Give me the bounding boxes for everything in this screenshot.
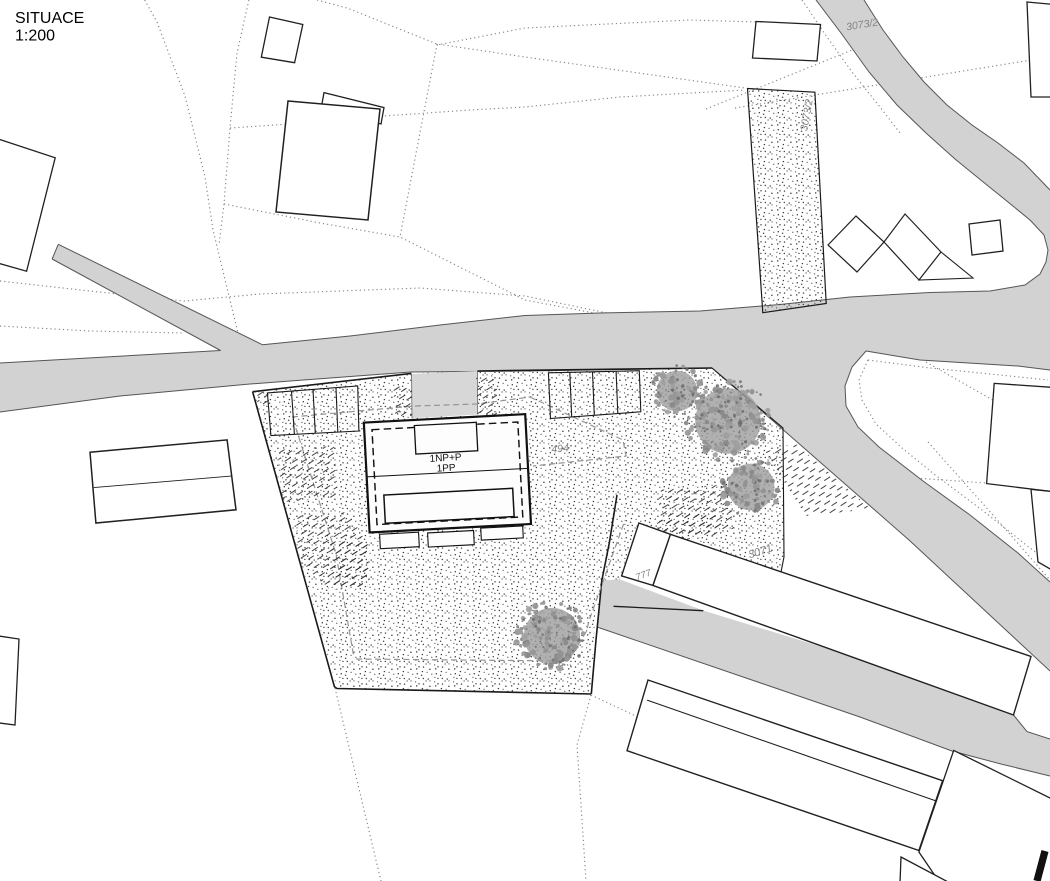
svg-text:SITUACE: SITUACE [15,10,84,27]
svg-text:1PP: 1PP [436,463,456,475]
svg-text:494: 494 [551,442,570,455]
svg-text:1:200: 1:200 [15,28,55,45]
